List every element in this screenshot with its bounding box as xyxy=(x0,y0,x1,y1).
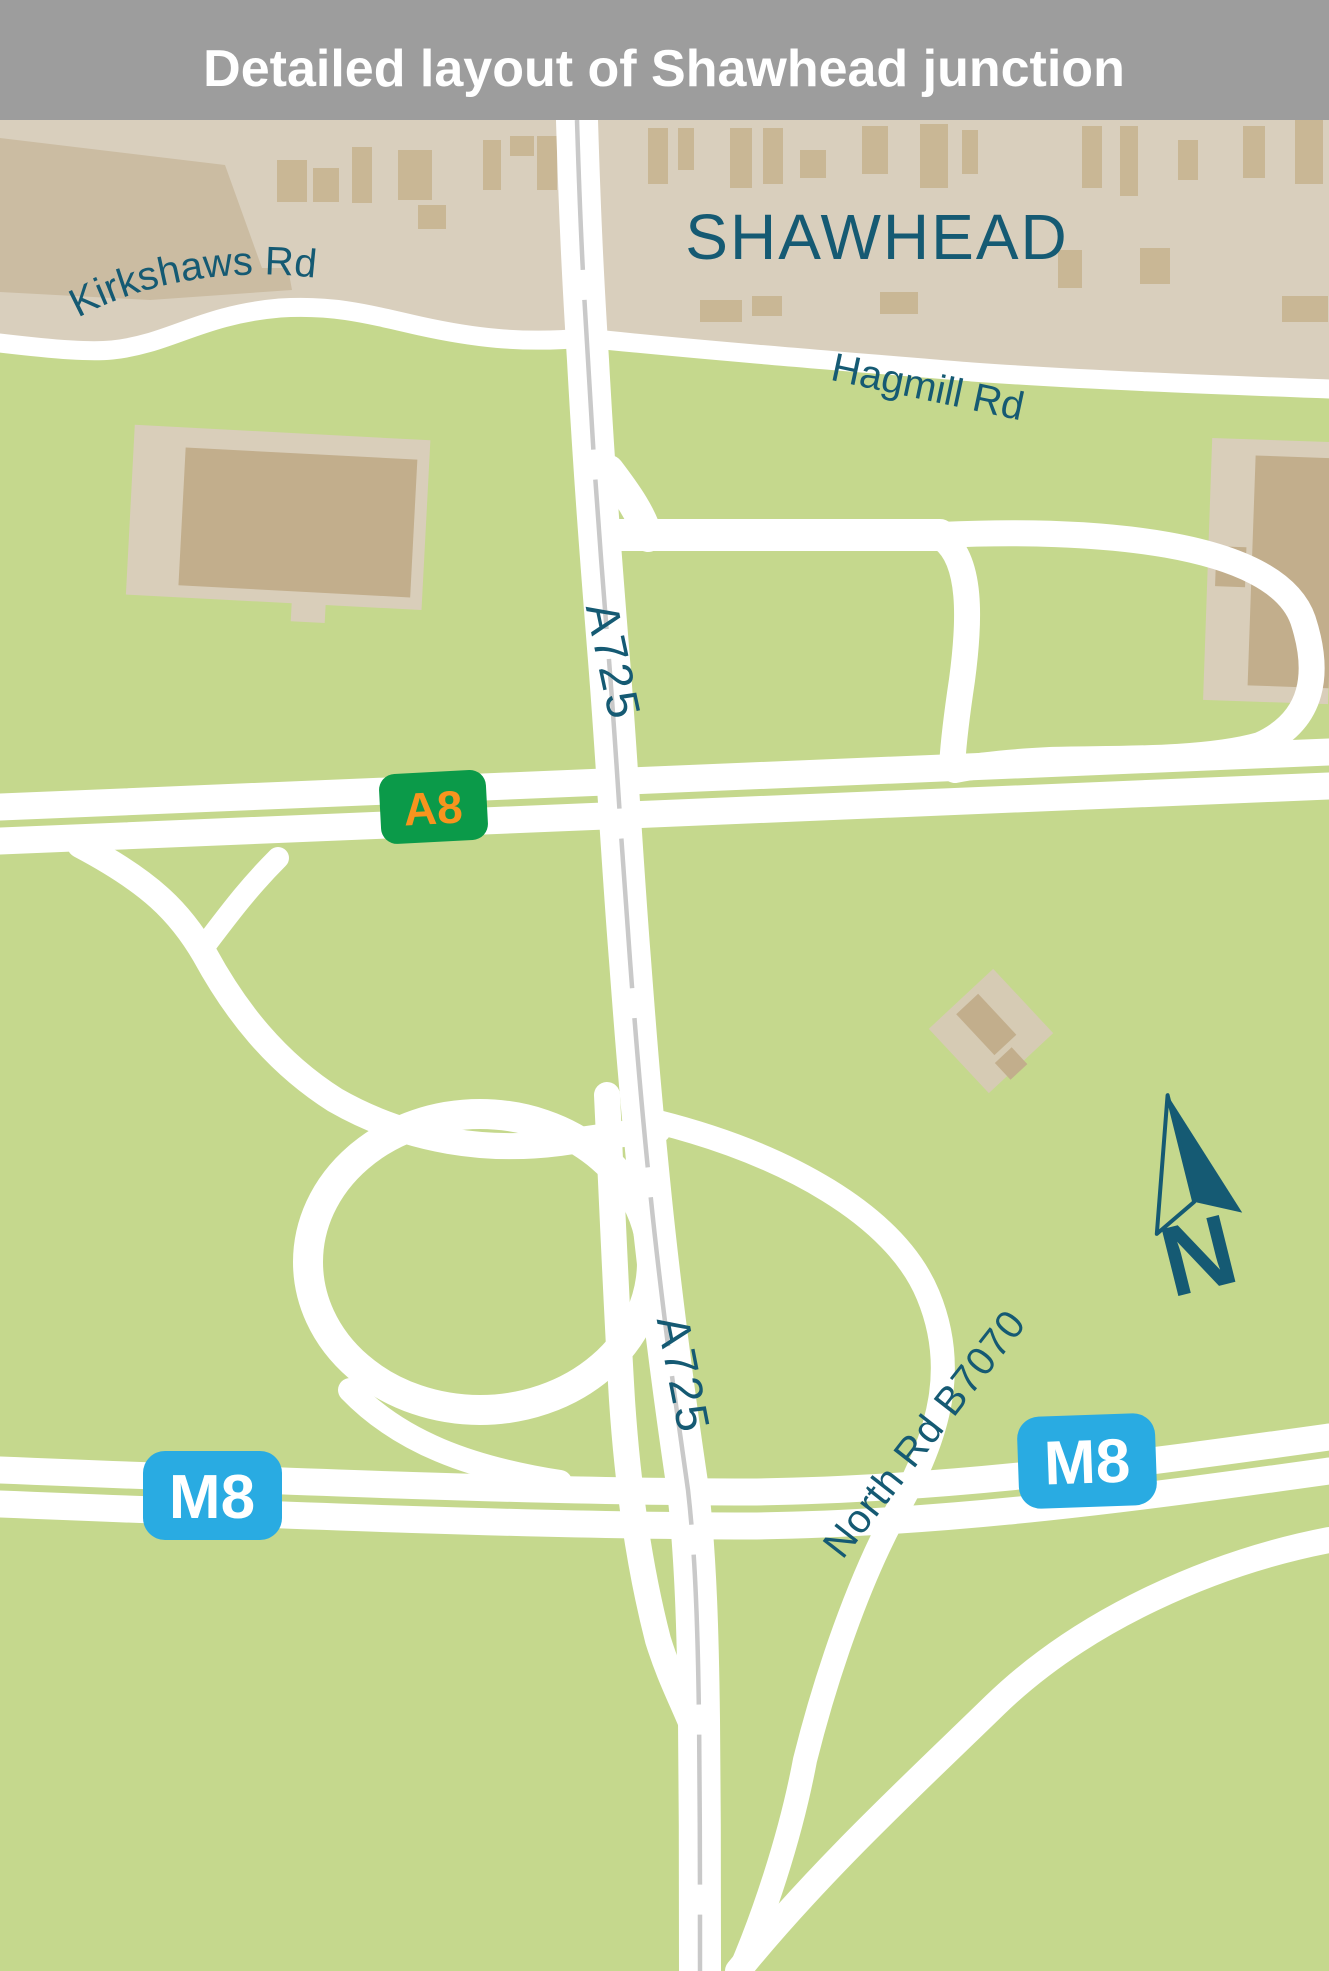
m8-badge-east: M8 xyxy=(1016,1413,1157,1510)
a8-badge: A8 xyxy=(378,769,489,845)
map-canvas: Kirkshaws Rd Hagmill Rd SHAWHEAD A725 A7… xyxy=(0,0,1329,1971)
shawhead-area-label: SHAWHEAD xyxy=(685,201,1068,273)
page-title: Detailed layout of Shawhead junction xyxy=(203,40,1125,98)
shawhead-junction-map-page: Kirkshaws Rd Hagmill Rd SHAWHEAD A725 A7… xyxy=(0,0,1329,1971)
m8-badge-west-label: M8 xyxy=(169,1463,255,1532)
m8-badge-east-label: M8 xyxy=(1043,1427,1131,1499)
m8-badge-west: M8 xyxy=(143,1451,282,1540)
a8-badge-label: A8 xyxy=(402,780,463,835)
